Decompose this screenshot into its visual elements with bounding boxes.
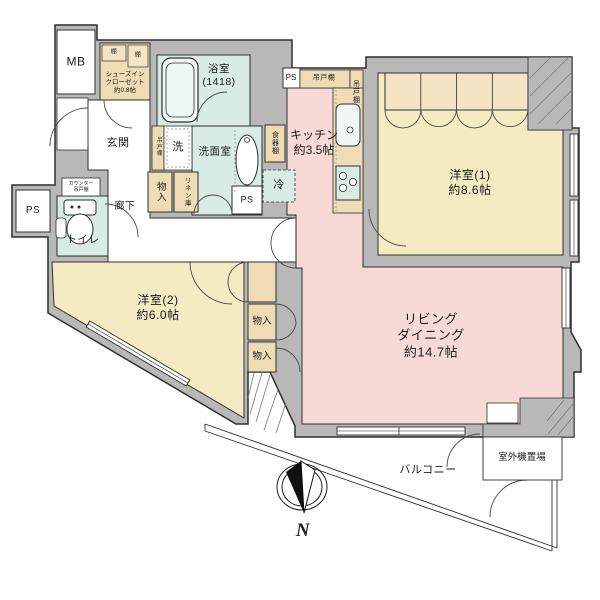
pipe-space-mid-label: PS [240,194,253,205]
outdoor-unit-label: 室外機置場 [498,452,546,464]
entrance-label: 玄関 [107,137,130,151]
counter-shelf-label: カウンター 吊戸棚 [68,181,93,194]
storage-mid-label: 物入 [252,316,271,328]
storage-low-label: 物入 [252,351,271,363]
meter-box-label: MB [67,55,86,70]
bedroom1-label: 洋室(1) 約8.6帖 [448,168,491,198]
pipe-space-left-label: PS [26,205,40,218]
room-bedroom2-area [52,262,244,418]
dish-shelf-label: 食器棚 [272,131,279,155]
toilet-label: トイレ [67,233,100,246]
bathtub-icon [162,58,198,122]
linen-closet-label: リネン庫 [183,177,190,207]
north-label: N [296,519,310,543]
hall-storage-label: 物入 [155,182,165,203]
pillar-box [487,403,518,423]
shelf-left-label: 棚 [111,49,118,57]
hanging-shelf-right-label: 吊戸棚 [353,80,360,104]
floorplan: MB 棚 棚 シューズイン クローゼット 約0.8帖 浴室 (1418) 玄関 … [0,0,600,600]
washing-machine-label: 洗 [172,141,184,155]
kitchen-sink-icon [336,104,360,146]
bathroom-label: 浴室 (1418) [202,63,235,89]
living-dining-label: リビング ダイニング 約14.7帖 [397,312,465,361]
balcony-label: バルコニー [399,464,456,478]
compass-icon [277,461,327,513]
balcony-area [205,424,562,551]
entrance-porch [57,98,88,150]
corridor-label: 廊下 [115,201,136,214]
washer-hanging-shelf-label: 吊戸棚 [155,137,161,157]
shoes-closet-label: シューズイン クローゼット 約0.8帖 [106,71,145,95]
refrigerator-label: 冷 [273,179,285,193]
shelf-right-label: 棚 [135,52,142,60]
hanging-shelf-top-label: 吊戸棚 [313,75,336,84]
washroom-label: 洗面室 [199,145,232,158]
bedroom2-label: 洋室(2) 約6.0帖 [136,293,179,323]
kitchen-label: キッチン 約3.5帖 [290,128,338,158]
pipe-space-top-label: PS [286,73,297,83]
floorplan-canvas [0,0,600,600]
bedroom2-closet-box [248,262,276,302]
